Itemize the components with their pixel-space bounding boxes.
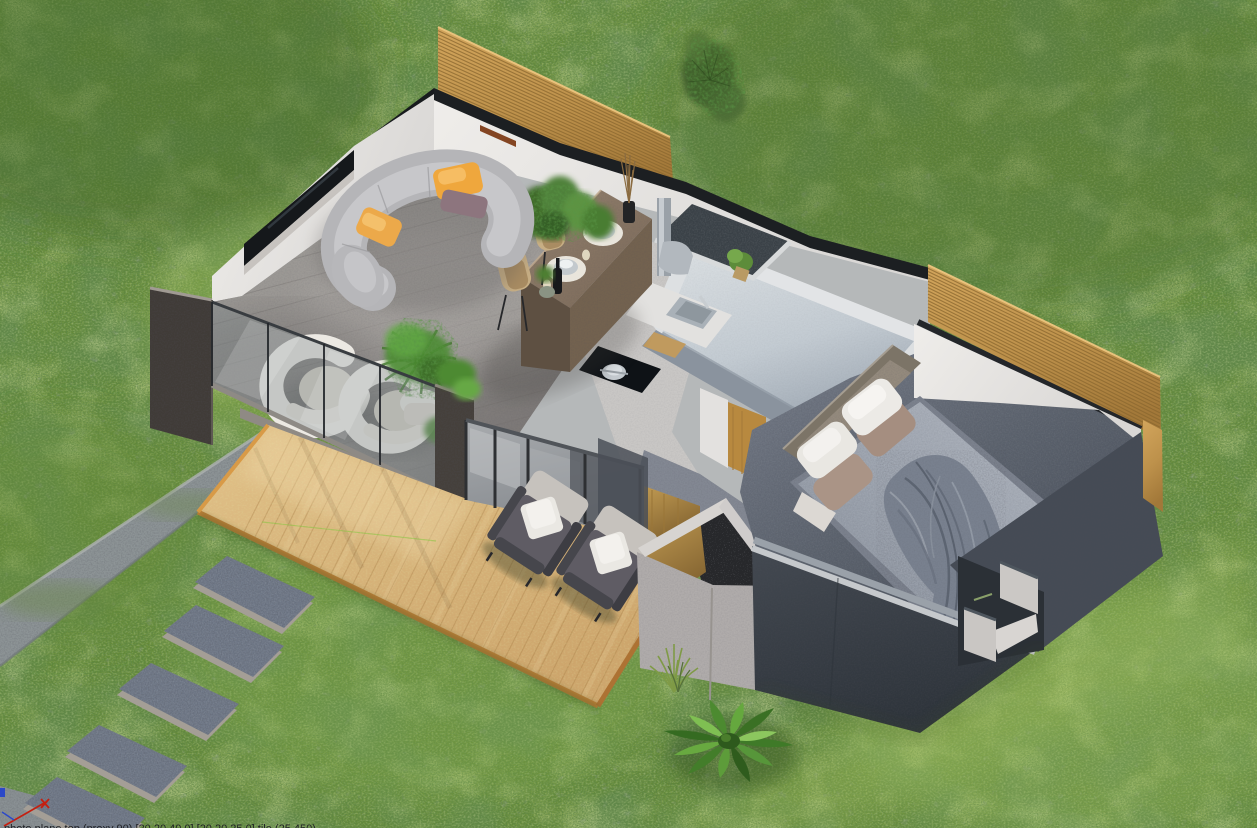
svg-text:photo plane top (proxy 90) [2: photo plane top (proxy 90) [20 20 40 0] … — [4, 823, 316, 828]
